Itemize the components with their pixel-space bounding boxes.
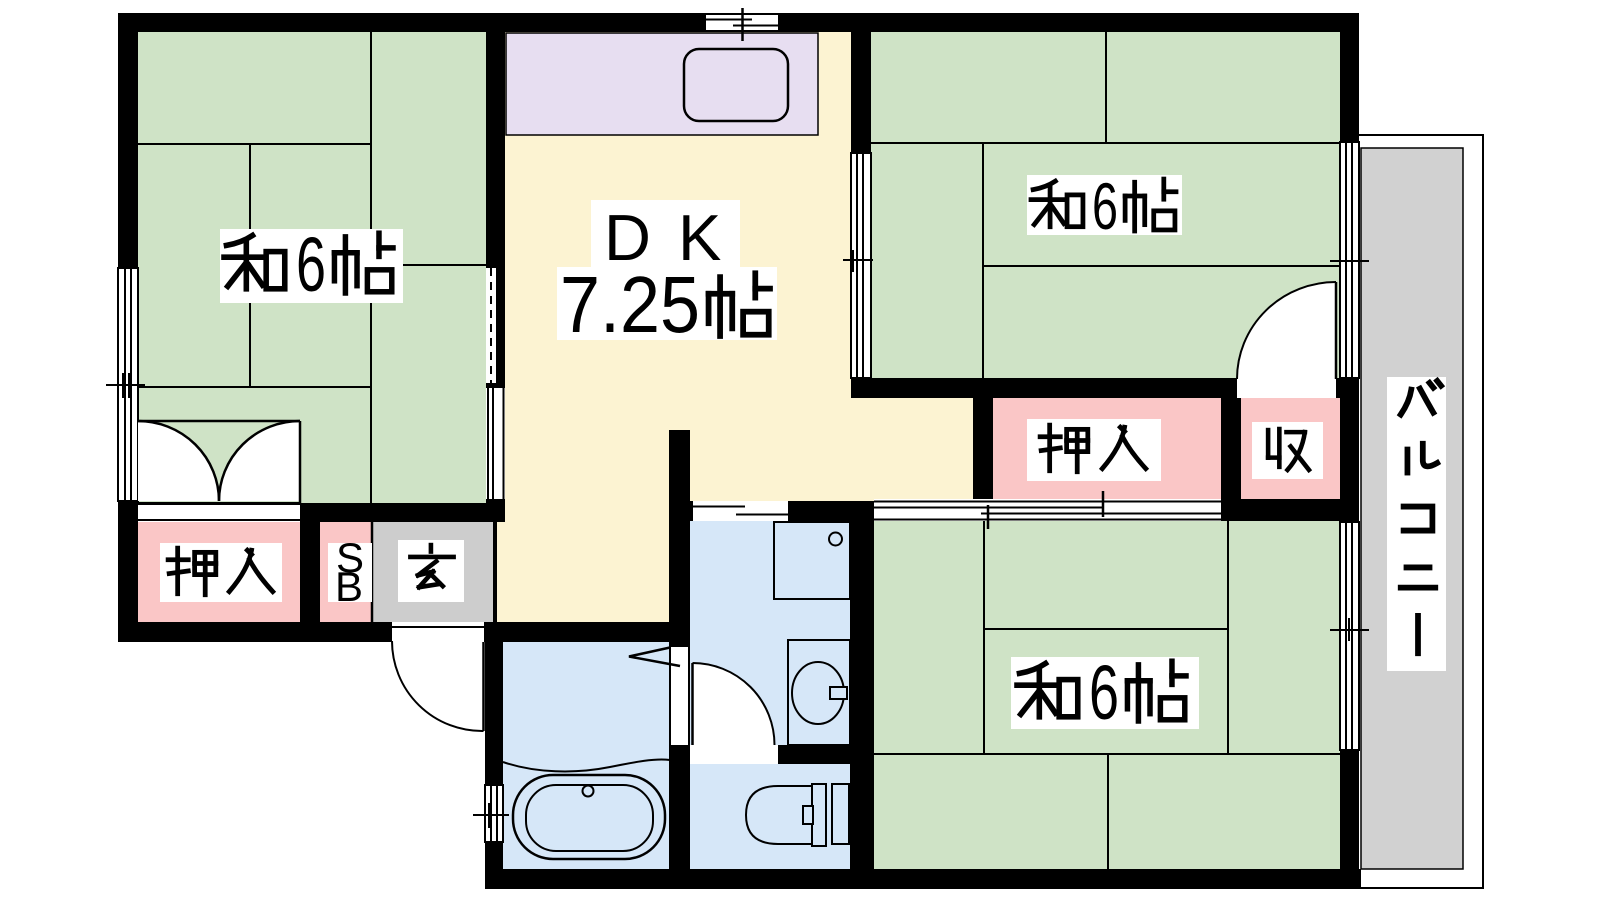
svg-text:6: 6 (296, 222, 326, 308)
svg-text:6: 6 (1089, 650, 1119, 736)
svg-text:B: B (335, 563, 363, 610)
svg-text:7.25: 7.25 (560, 260, 700, 349)
svg-text:6: 6 (1092, 169, 1118, 243)
